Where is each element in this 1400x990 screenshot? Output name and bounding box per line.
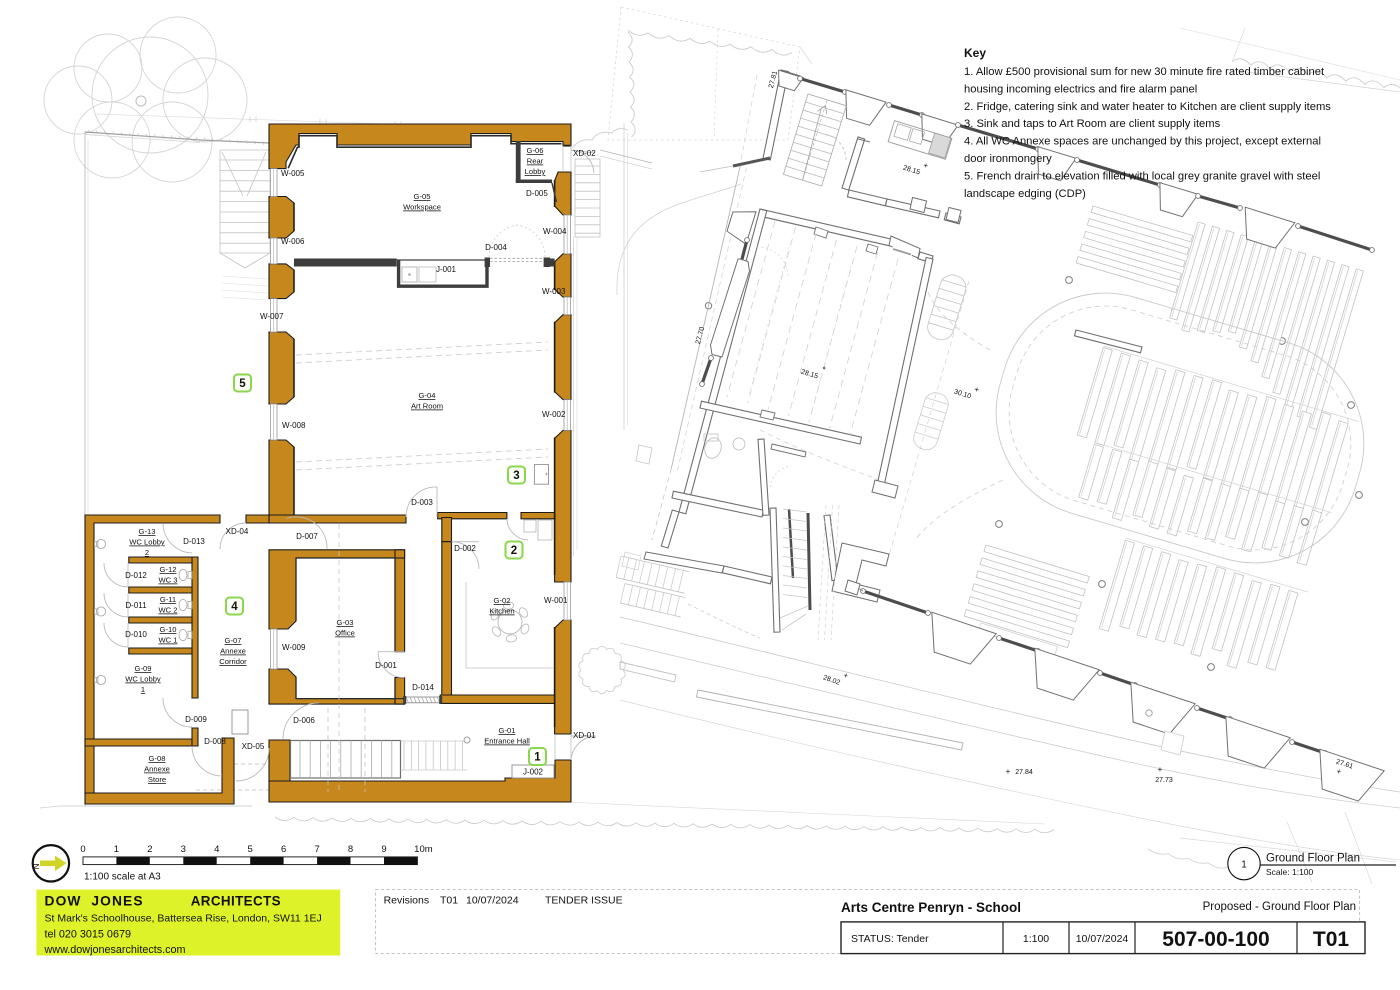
svg-text:door ironmongery: door ironmongery (964, 153, 1052, 165)
svg-text:D-011: D-011 (125, 601, 147, 610)
svg-text:1: 1 (141, 685, 145, 694)
svg-text:N: N (31, 863, 41, 869)
svg-text:D-002: D-002 (454, 544, 476, 553)
svg-text:www.dowjonesarchitects.com: www.dowjonesarchitects.com (44, 944, 186, 956)
svg-text:Art Room: Art Room (411, 402, 443, 411)
svg-text:T01: T01 (440, 895, 458, 907)
svg-text:TENDER ISSUE: TENDER ISSUE (545, 895, 623, 907)
svg-text:Annexe: Annexe (144, 765, 170, 774)
svg-text:1: 1 (1241, 860, 1247, 871)
svg-text:D-008: D-008 (204, 737, 226, 746)
svg-text:+: + (1158, 765, 1163, 774)
svg-text:STATUS: Tender: STATUS: Tender (851, 933, 929, 945)
svg-text:D-005: D-005 (526, 189, 548, 198)
svg-text:Store: Store (148, 775, 166, 784)
svg-text:J-001: J-001 (436, 265, 457, 274)
svg-text:D-013: D-013 (183, 537, 205, 546)
svg-text:6: 6 (281, 844, 286, 855)
svg-text:W-003: W-003 (542, 287, 566, 296)
svg-text:ARCHITECTS: ARCHITECTS (191, 894, 281, 909)
svg-text:D-006: D-006 (293, 716, 315, 725)
svg-text:W-001: W-001 (544, 596, 568, 605)
svg-text:Entrance Hall: Entrance Hall (484, 737, 530, 746)
svg-text:2. Fridge, catering sink and w: 2. Fridge, catering sink and water heate… (964, 101, 1331, 113)
svg-text:Arts Centre Penryn - School: Arts Centre Penryn - School (841, 900, 1021, 915)
svg-text:Kitchen: Kitchen (489, 607, 514, 616)
svg-text:5: 5 (248, 844, 253, 855)
svg-text:1:100: 1:100 (1023, 933, 1049, 945)
svg-text:10/07/2024: 10/07/2024 (1076, 933, 1129, 945)
svg-text:W-005: W-005 (281, 169, 305, 178)
svg-text:G-07: G-07 (225, 636, 242, 645)
svg-text:G-04: G-04 (419, 391, 436, 400)
svg-text:Lobby: Lobby (525, 167, 546, 176)
svg-text:7: 7 (314, 844, 319, 855)
svg-text:2: 2 (511, 545, 517, 557)
svg-text:3: 3 (181, 844, 186, 855)
svg-text:5. French drain to elevation f: 5. French drain to elevation filled with… (964, 170, 1320, 182)
svg-text:G-03: G-03 (337, 618, 354, 627)
svg-text:Key: Key (964, 46, 986, 60)
svg-text:D-007: D-007 (296, 532, 318, 541)
svg-text:G-01: G-01 (499, 726, 516, 735)
svg-text:D-001: D-001 (375, 661, 397, 670)
svg-text:Corridor: Corridor (219, 657, 247, 666)
svg-text:4. All WC Annexe spaces are un: 4. All WC Annexe spaces are unchanged by… (964, 136, 1321, 148)
svg-text:XD-05: XD-05 (242, 742, 265, 751)
svg-text:W-008: W-008 (282, 421, 306, 430)
svg-text:W-006: W-006 (281, 237, 305, 246)
svg-text:WC Lobby: WC Lobby (125, 675, 161, 684)
svg-text:D-014: D-014 (412, 683, 434, 692)
svg-text:507-00-100: 507-00-100 (1162, 928, 1269, 951)
svg-text:WC 2: WC 2 (159, 606, 178, 615)
svg-text:5: 5 (239, 378, 246, 390)
svg-text:D-003: D-003 (411, 498, 433, 507)
svg-text:W-002: W-002 (542, 410, 566, 419)
svg-text:G-08: G-08 (149, 754, 166, 763)
svg-text:2: 2 (145, 548, 149, 557)
svg-text:Rear: Rear (527, 157, 544, 166)
svg-text:D-010: D-010 (125, 630, 147, 639)
svg-text:W-007: W-007 (260, 312, 284, 321)
svg-text:1: 1 (534, 752, 541, 764)
svg-text:Workspace: Workspace (403, 203, 441, 212)
svg-text:landscape edging (CDP): landscape edging (CDP) (964, 188, 1086, 200)
svg-text:10m: 10m (414, 844, 433, 855)
svg-text:XD-01: XD-01 (573, 731, 596, 740)
svg-text:DOW JONES: DOW JONES (45, 894, 144, 909)
svg-text:Annexe: Annexe (220, 647, 246, 656)
svg-text:G-05: G-05 (414, 192, 431, 201)
svg-text:Office: Office (335, 629, 355, 638)
svg-text:1:100 scale at A3: 1:100 scale at A3 (84, 872, 161, 883)
svg-text:W-004: W-004 (543, 227, 567, 236)
svg-text:tel 020 3015 0679: tel 020 3015 0679 (45, 929, 131, 941)
svg-text:2: 2 (147, 844, 152, 855)
svg-text:G-02: G-02 (494, 596, 511, 605)
svg-text:3. Sink and taps to Art Room a: 3. Sink and taps to Art Room are client … (964, 118, 1221, 130)
svg-text:Ground Floor Plan: Ground Floor Plan (1266, 853, 1360, 865)
svg-text:G-13: G-13 (139, 527, 156, 536)
svg-text:WC 3: WC 3 (159, 576, 178, 585)
svg-text:J-002: J-002 (523, 768, 544, 777)
svg-text:27.73: 27.73 (1155, 777, 1173, 784)
svg-text:4: 4 (231, 601, 238, 613)
svg-text:G-06: G-06 (527, 146, 544, 155)
svg-text:G-09: G-09 (135, 664, 152, 673)
svg-text:Proposed - Ground Floor Plan: Proposed - Ground Floor Plan (1203, 901, 1356, 913)
svg-text:1: 1 (114, 844, 119, 855)
svg-text:St Mark's Schoolhouse, Batters: St Mark's Schoolhouse, Battersea Rise, L… (45, 913, 322, 925)
svg-text:WC 1: WC 1 (159, 636, 178, 645)
svg-text:G-10: G-10 (160, 625, 177, 634)
svg-text:0: 0 (80, 844, 85, 855)
svg-text:+: + (1006, 767, 1011, 776)
svg-text:W-009: W-009 (282, 643, 306, 652)
svg-text:Scale: 1:100: Scale: 1:100 (1266, 867, 1314, 877)
svg-text:housing incoming electrics and: housing incoming electrics and fire alar… (964, 83, 1197, 95)
svg-text:T01: T01 (1313, 928, 1350, 951)
svg-text:D-012: D-012 (125, 571, 147, 580)
svg-text:WC Lobby: WC Lobby (129, 538, 165, 547)
svg-text:10/07/2024: 10/07/2024 (466, 895, 519, 907)
svg-text:8: 8 (348, 844, 353, 855)
svg-text:XD-04: XD-04 (226, 527, 249, 536)
svg-text:D-004: D-004 (485, 243, 507, 252)
svg-text:9: 9 (381, 844, 386, 855)
svg-text:27.84: 27.84 (1015, 769, 1033, 776)
svg-text:XD-02: XD-02 (573, 149, 596, 158)
svg-text:D-009: D-009 (185, 715, 207, 724)
svg-text:Revisions: Revisions (384, 895, 430, 907)
svg-text:3: 3 (513, 470, 519, 482)
svg-text:1. Allow £500 provisional sum: 1. Allow £500 provisional sum for new 30… (964, 66, 1325, 78)
svg-text:4: 4 (214, 844, 219, 855)
svg-text:G-12: G-12 (160, 565, 177, 574)
svg-text:G-11: G-11 (160, 595, 176, 604)
